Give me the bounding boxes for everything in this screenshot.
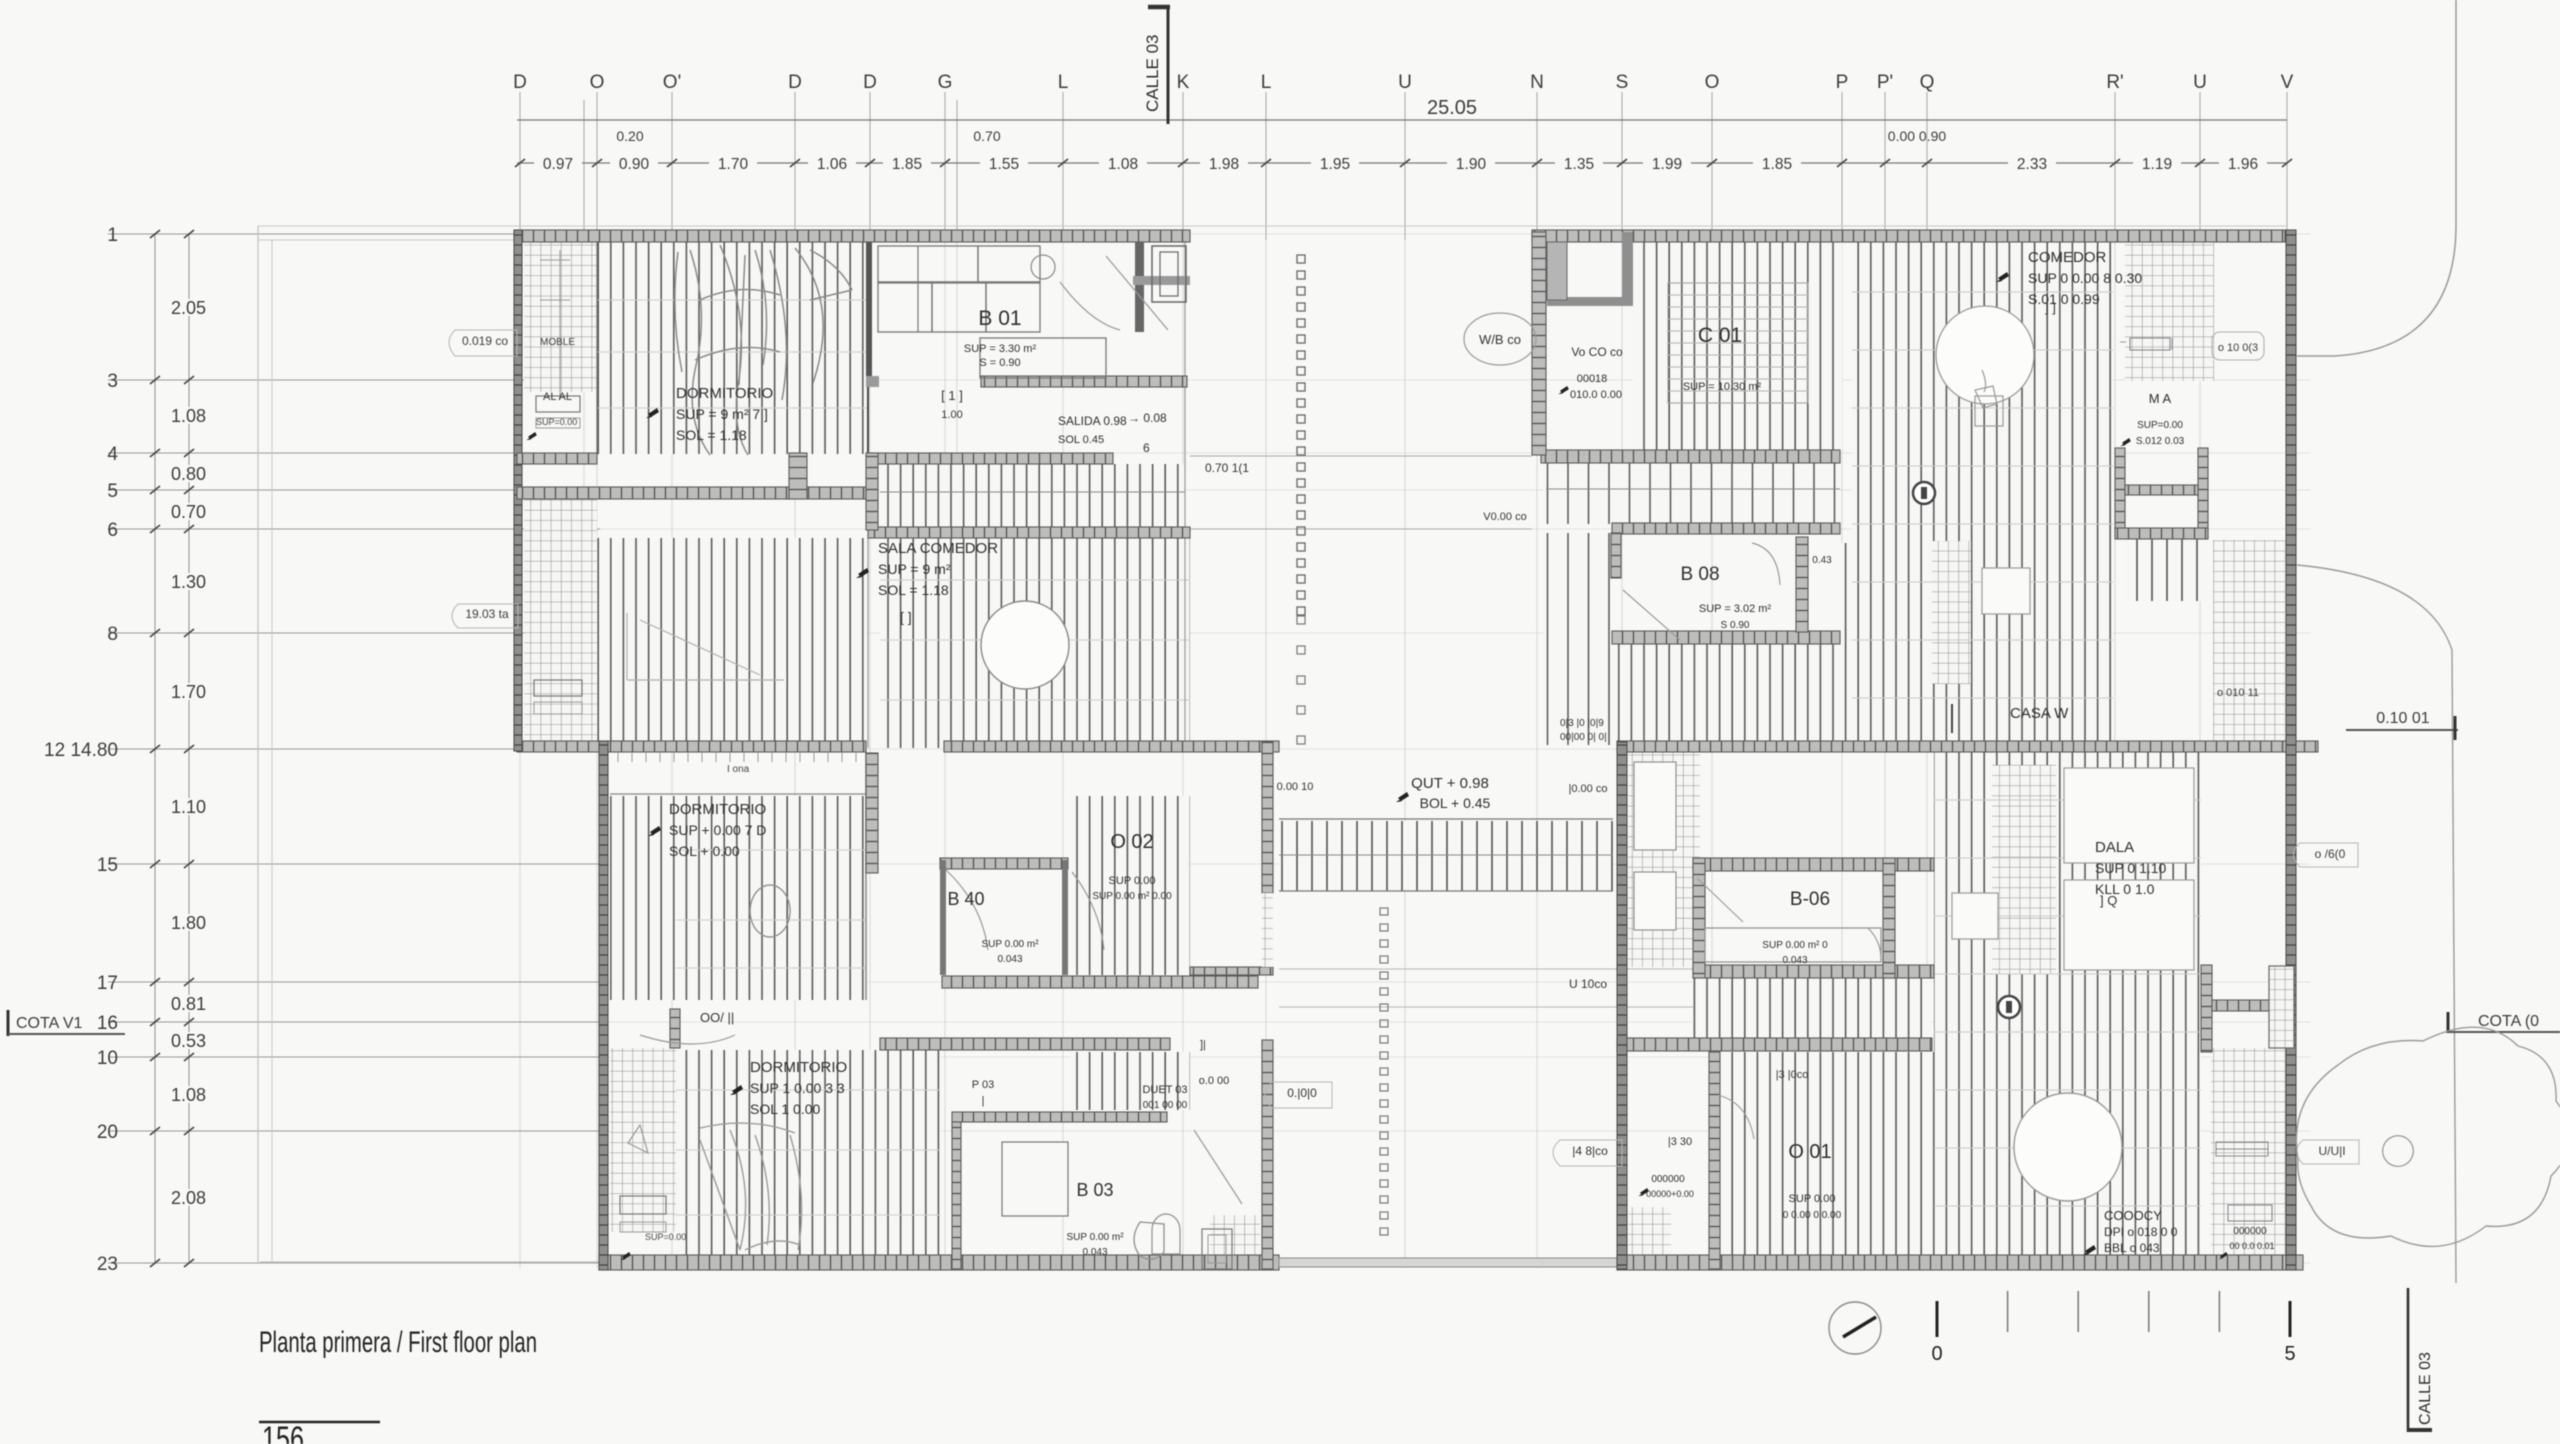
- svg-text:0.70: 0.70: [171, 502, 206, 522]
- svg-text:0.043: 0.043: [997, 954, 1022, 965]
- svg-text:Vo CO co: Vo CO co: [1571, 345, 1623, 359]
- svg-text:SUP=0.00: SUP=0.00: [2137, 420, 2183, 431]
- svg-text:6: 6: [1143, 441, 1150, 455]
- svg-text:B-06: B-06: [1790, 889, 1830, 910]
- svg-text:0.97: 0.97: [543, 156, 573, 173]
- svg-text:] Q: ] Q: [2100, 893, 2117, 908]
- svg-text:B 01: B 01: [978, 307, 1021, 330]
- svg-text:P: P: [1836, 72, 1849, 93]
- svg-text:SUP 0 0.00 8 0.30: SUP 0 0.00 8 0.30: [2028, 270, 2142, 286]
- svg-text:B 03: B 03: [1076, 1180, 1113, 1200]
- svg-text:COTA V1: COTA V1: [16, 1015, 82, 1032]
- svg-text:o 10 0(3: o 10 0(3: [2218, 342, 2258, 354]
- svg-text:CALLE 03: CALLE 03: [2417, 1352, 2434, 1425]
- svg-text:0.20: 0.20: [616, 128, 643, 144]
- svg-text:0.019 co: 0.019 co: [462, 334, 508, 348]
- svg-text:SUP = 10.30 m²: SUP = 10.30 m²: [1683, 381, 1762, 393]
- svg-text:BBL o 043: BBL o 043: [2104, 1241, 2160, 1255]
- svg-text:1.85: 1.85: [1762, 156, 1792, 173]
- svg-text:1.70: 1.70: [718, 156, 749, 173]
- svg-text:19.03 ta: 19.03 ta: [465, 607, 509, 621]
- svg-text:S: S: [1616, 72, 1629, 93]
- svg-text:K: K: [1177, 72, 1190, 93]
- svg-text:W/B co: W/B co: [1479, 332, 1521, 347]
- svg-text:COOOCY: COOOCY: [2104, 1208, 2162, 1223]
- svg-text:QUT + 0.98: QUT + 0.98: [1411, 775, 1489, 792]
- svg-text:DORMITORIO: DORMITORIO: [669, 801, 766, 818]
- svg-text:U: U: [2193, 72, 2207, 93]
- svg-text:SOL = 1.18: SOL = 1.18: [878, 582, 949, 598]
- svg-text:SOL 1 0.00: SOL 1 0.00: [750, 1101, 821, 1117]
- svg-text:|0.00 co: |0.00 co: [1569, 783, 1608, 795]
- svg-text:DALA: DALA: [2095, 839, 2134, 856]
- svg-text:1.00: 1.00: [941, 409, 962, 421]
- svg-text:o /6(0: o /6(0: [2315, 847, 2346, 861]
- svg-text:1.06: 1.06: [817, 156, 847, 173]
- svg-text:010.0 0.00: 010.0 0.00: [1570, 389, 1622, 401]
- svg-text:1.10: 1.10: [171, 797, 206, 817]
- svg-text:] ]: ] ]: [2045, 300, 2056, 315]
- svg-text:Q: Q: [1920, 72, 1935, 93]
- svg-text:SUP 0.00 m²: SUP 0.00 m²: [981, 939, 1039, 950]
- svg-text:0.00 0.90: 0.00 0.90: [1888, 128, 1947, 144]
- svg-text:S = 0.90: S = 0.90: [979, 357, 1020, 369]
- svg-text:O 01: O 01: [1788, 1141, 1831, 1163]
- svg-text:00000+0.00: 00000+0.00: [1646, 1189, 1694, 1199]
- svg-text:DPI o 018 0 0: DPI o 018 0 0: [2104, 1225, 2178, 1239]
- svg-text:2.33: 2.33: [2017, 156, 2047, 173]
- svg-text:12 14.80: 12 14.80: [44, 740, 118, 761]
- svg-text:16: 16: [97, 1013, 118, 1034]
- svg-text:[ 1 ]: [ 1 ]: [941, 388, 963, 403]
- svg-text:1.95: 1.95: [1320, 156, 1350, 173]
- svg-text:1.55: 1.55: [989, 156, 1019, 173]
- svg-text:1.96: 1.96: [2228, 156, 2258, 173]
- svg-text:0.90: 0.90: [619, 156, 650, 173]
- svg-text:COMEDOR: COMEDOR: [2028, 249, 2107, 266]
- svg-text:0: 0: [1931, 1343, 1942, 1365]
- svg-text:0.80: 0.80: [171, 464, 206, 484]
- svg-text:1.70: 1.70: [171, 682, 206, 702]
- svg-text:0.|0|0: 0.|0|0: [1287, 1086, 1317, 1100]
- svg-text:001 00 00: 001 00 00: [1143, 1100, 1188, 1111]
- svg-text:0.43: 0.43: [1812, 555, 1832, 566]
- svg-text:SUP 0.00 m² 0: SUP 0.00 m² 0: [1762, 940, 1828, 951]
- svg-text:SUP=0.00: SUP=0.00: [645, 1232, 686, 1242]
- svg-text:1: 1: [107, 225, 118, 246]
- svg-text:C 01: C 01: [1698, 324, 1742, 347]
- svg-text:Planta primera / First floor p: Planta primera / First floor plan: [259, 1326, 537, 1359]
- svg-text:U: U: [1398, 72, 1412, 93]
- svg-text:00 0.0 0.01: 00 0.0 0.01: [2229, 1241, 2274, 1251]
- svg-text:DORMITORIO: DORMITORIO: [676, 385, 773, 402]
- svg-text:o.0 00: o.0 00: [1199, 1075, 1230, 1087]
- svg-text:000000: 000000: [1651, 1174, 1685, 1185]
- svg-text:SUP 0.00: SUP 0.00: [1789, 1193, 1836, 1205]
- svg-text:1.08: 1.08: [171, 406, 206, 426]
- svg-text:S 0.90: S 0.90: [1721, 620, 1750, 631]
- svg-text:O: O: [590, 72, 605, 93]
- svg-text:1.08: 1.08: [171, 1085, 206, 1105]
- svg-text:D: D: [513, 72, 527, 93]
- svg-text:1.35: 1.35: [1564, 156, 1594, 173]
- svg-text:1.80: 1.80: [171, 913, 206, 933]
- svg-text:1.90: 1.90: [1456, 156, 1487, 173]
- svg-text:V: V: [2281, 72, 2294, 93]
- svg-text:AL AL: AL AL: [543, 391, 572, 403]
- svg-text:0 0.00 0 0.00: 0 0.00 0 0.00: [1783, 1210, 1842, 1221]
- svg-text:U 10co: U 10co: [1569, 977, 1607, 991]
- svg-text:G: G: [938, 72, 953, 93]
- svg-text:CALLE 03: CALLE 03: [1143, 35, 1162, 113]
- svg-text:BOL + 0.45: BOL + 0.45: [1420, 795, 1491, 811]
- svg-text:20: 20: [97, 1122, 118, 1143]
- svg-text:P 03: P 03: [972, 1079, 994, 1091]
- svg-text:0.10 01: 0.10 01: [2376, 710, 2429, 727]
- svg-text:D: D: [863, 72, 877, 93]
- svg-text:SOL + 0.00: SOL + 0.00: [669, 843, 740, 859]
- svg-text:D: D: [788, 72, 802, 93]
- svg-text:|4 8|co: |4 8|co: [1572, 1144, 1608, 1158]
- svg-text:15: 15: [97, 855, 118, 876]
- svg-text:O: O: [1705, 72, 1720, 93]
- svg-text:1.85: 1.85: [892, 156, 922, 173]
- svg-text:1.19: 1.19: [2142, 156, 2172, 173]
- svg-text:U/U|I: U/U|I: [2318, 1144, 2345, 1158]
- svg-text:B 40: B 40: [947, 889, 984, 909]
- svg-text:00|00 0| 0|: 00|00 0| 0|: [1560, 732, 1607, 743]
- svg-text:L: L: [1058, 72, 1069, 93]
- svg-text:00018: 00018: [1577, 373, 1608, 385]
- svg-text:SUP = 3.02 m²: SUP = 3.02 m²: [1699, 603, 1772, 615]
- svg-text:SOL 0.45: SOL 0.45: [1058, 434, 1104, 446]
- svg-text:N: N: [1530, 72, 1544, 93]
- svg-text:CASA W: CASA W: [2010, 705, 2069, 722]
- svg-text:000000: 000000: [2233, 1226, 2267, 1237]
- svg-text:DUET 03: DUET 03: [1142, 1084, 1187, 1096]
- svg-text:2.05: 2.05: [171, 298, 206, 318]
- svg-text:0.53: 0.53: [171, 1031, 206, 1051]
- svg-text:SOL = 1.18: SOL = 1.18: [676, 427, 747, 443]
- svg-text:I ona: I ona: [727, 764, 750, 775]
- svg-text:SUP 0.00 m² 0.00: SUP 0.00 m² 0.00: [1092, 891, 1172, 902]
- svg-text:8: 8: [107, 624, 118, 645]
- svg-text:1.99: 1.99: [1652, 156, 1682, 173]
- svg-text:SUP=0.00: SUP=0.00: [536, 417, 577, 427]
- svg-text:SUP 0 1.10: SUP 0 1.10: [2095, 860, 2167, 876]
- svg-text:R': R': [2106, 72, 2123, 93]
- svg-text:MOBLE: MOBLE: [540, 337, 575, 348]
- svg-text:]|: ]|: [1200, 1039, 1206, 1051]
- svg-text:1.30: 1.30: [171, 572, 206, 592]
- svg-text:SUP = 9 m² 7 ]: SUP = 9 m² 7 ]: [676, 406, 768, 422]
- svg-text:5: 5: [107, 481, 118, 502]
- svg-text:S.01 0 0.99: S.01 0 0.99: [2028, 291, 2100, 307]
- svg-text:SUP + 0.00 7 D: SUP + 0.00 7 D: [669, 822, 766, 838]
- svg-text:5: 5: [2284, 1343, 2295, 1365]
- svg-text:→ 0.08: → 0.08: [1128, 411, 1167, 425]
- svg-text:SUP 1 0.00 3 3: SUP 1 0.00 3 3: [750, 1080, 845, 1096]
- svg-text:OO/ ||: OO/ ||: [700, 1010, 734, 1025]
- svg-text:156: 156: [262, 1420, 304, 1444]
- svg-text:COTA (0: COTA (0: [2478, 1013, 2539, 1030]
- svg-text:SUP = 3.30 m²: SUP = 3.30 m²: [964, 343, 1037, 355]
- svg-text:o 010 11: o 010 11: [2217, 687, 2259, 699]
- svg-text:1.08: 1.08: [1108, 156, 1138, 173]
- svg-text:0|3 |0 |0|9: 0|3 |0 |0|9: [1560, 718, 1604, 729]
- svg-text:B 08: B 08: [1680, 564, 1719, 585]
- svg-text:25.05: 25.05: [1427, 97, 1477, 119]
- svg-text:|3 30: |3 30: [1668, 1136, 1692, 1148]
- svg-text:17: 17: [97, 973, 118, 994]
- svg-text:SUP = 9 m²: SUP = 9 m²: [878, 561, 951, 577]
- svg-text:4: 4: [107, 444, 118, 465]
- svg-text:S.012 0.03: S.012 0.03: [2136, 436, 2185, 447]
- svg-text:O 02: O 02: [1110, 831, 1153, 853]
- svg-text:6: 6: [107, 520, 118, 541]
- svg-text:V0.00 co: V0.00 co: [1483, 511, 1526, 523]
- svg-text:0.043: 0.043: [1782, 955, 1807, 966]
- svg-text:23: 23: [97, 1254, 118, 1275]
- svg-text:|3 |0co: |3 |0co: [1776, 1069, 1809, 1081]
- svg-text:0.70 1(1: 0.70 1(1: [1205, 461, 1249, 475]
- svg-text:L: L: [1261, 72, 1272, 93]
- svg-text:1.98: 1.98: [1209, 156, 1239, 173]
- svg-text:O': O': [663, 72, 681, 93]
- svg-text:M A: M A: [2149, 391, 2172, 406]
- svg-text:0.81: 0.81: [171, 994, 206, 1014]
- svg-text:SALIDA 0.98: SALIDA 0.98: [1058, 414, 1127, 428]
- svg-text:10: 10: [97, 1048, 118, 1069]
- svg-text:3: 3: [107, 371, 118, 392]
- svg-text:DORMITORIO: DORMITORIO: [750, 1059, 847, 1076]
- svg-text:SALA COMEDOR: SALA COMEDOR: [878, 540, 998, 557]
- svg-text:|: |: [982, 1095, 985, 1107]
- svg-text:SUP 0.00: SUP 0.00: [1109, 875, 1156, 887]
- svg-text:0.70: 0.70: [973, 128, 1000, 144]
- svg-text:0.043: 0.043: [1082, 1247, 1107, 1258]
- svg-text:SUP 0.00 m²: SUP 0.00 m²: [1066, 1232, 1124, 1243]
- svg-text:[ ]: [ ]: [900, 609, 912, 625]
- svg-text:P': P': [1877, 72, 1893, 93]
- svg-text:2.08: 2.08: [171, 1188, 206, 1208]
- svg-text:0.00 10: 0.00 10: [1277, 781, 1314, 793]
